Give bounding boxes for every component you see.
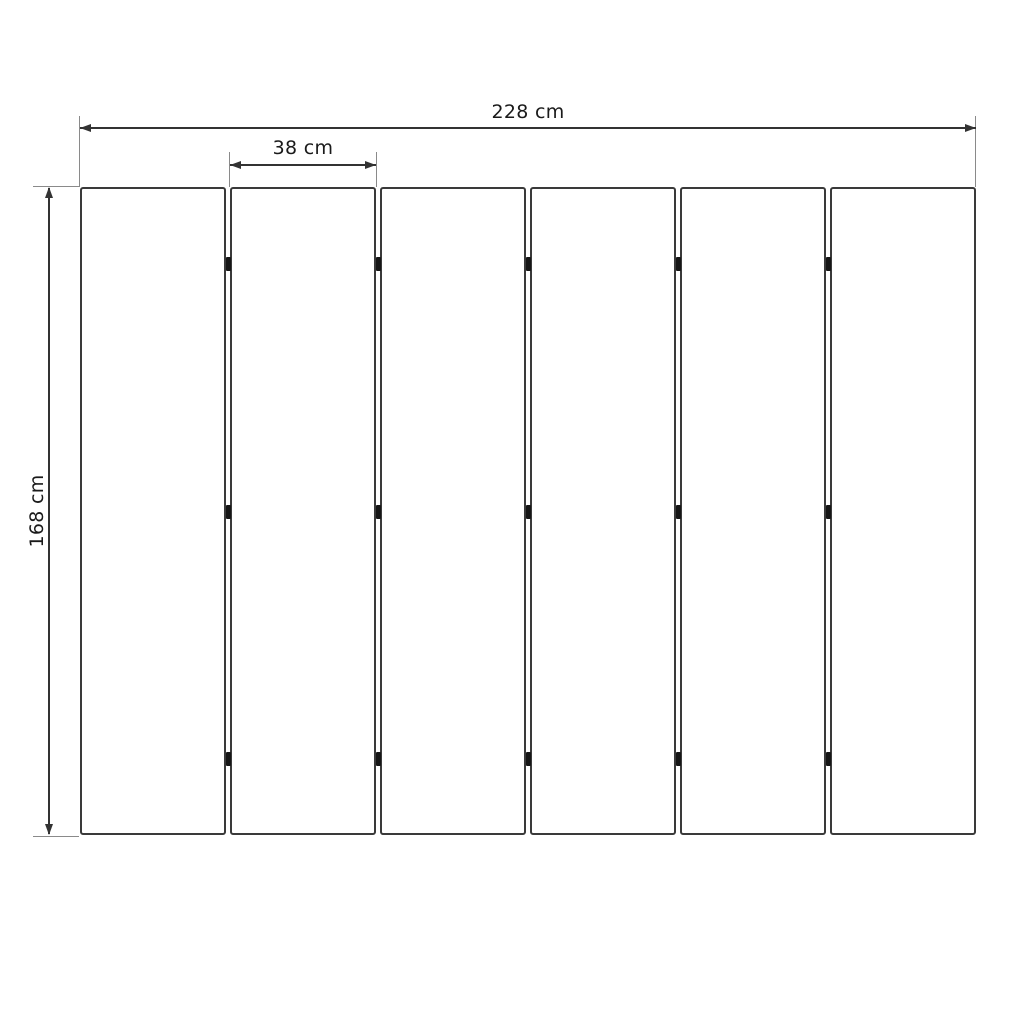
arrow-up-icon xyxy=(45,187,53,198)
panel-height-label: 168 cm xyxy=(27,466,47,556)
panel xyxy=(680,187,826,835)
panel-height-dimension-line xyxy=(48,188,50,834)
panel-width-extension-line-left xyxy=(229,152,230,187)
hinge-mark xyxy=(826,257,831,271)
hinge-mark xyxy=(676,257,681,271)
arrow-right-icon xyxy=(965,124,976,132)
panel xyxy=(530,187,676,835)
arrow-down-icon xyxy=(45,824,53,835)
hinge-mark xyxy=(226,257,231,271)
hinge-mark xyxy=(376,505,381,519)
arrow-right-icon xyxy=(365,161,376,169)
hinge-mark xyxy=(376,257,381,271)
hinge-mark xyxy=(526,505,531,519)
panel xyxy=(230,187,376,835)
panel-width-extension-line-right xyxy=(376,152,377,187)
arrow-left-icon xyxy=(230,161,241,169)
panel-height-extension-line-bottom xyxy=(33,836,79,837)
total-width-label: 228 cm xyxy=(480,101,576,123)
panel xyxy=(380,187,526,835)
panel xyxy=(80,187,226,835)
hinge-mark xyxy=(226,752,231,766)
panel-height-extension-line-top xyxy=(33,186,79,187)
hinge-mark xyxy=(826,752,831,766)
panel xyxy=(830,187,976,835)
total-width-dimension-line xyxy=(80,127,976,129)
panel-width-label: 38 cm xyxy=(255,137,351,159)
hinge-mark xyxy=(676,505,681,519)
panel-width-dimension-line xyxy=(230,164,376,166)
drawing-canvas: 228 cm 38 cm 168 cm xyxy=(0,0,1024,1024)
panel-group xyxy=(80,187,976,835)
hinge-mark xyxy=(376,752,381,766)
hinge-mark xyxy=(226,505,231,519)
hinge-mark xyxy=(826,505,831,519)
hinge-mark xyxy=(526,752,531,766)
hinge-mark xyxy=(526,257,531,271)
hinge-mark xyxy=(676,752,681,766)
arrow-left-icon xyxy=(80,124,91,132)
